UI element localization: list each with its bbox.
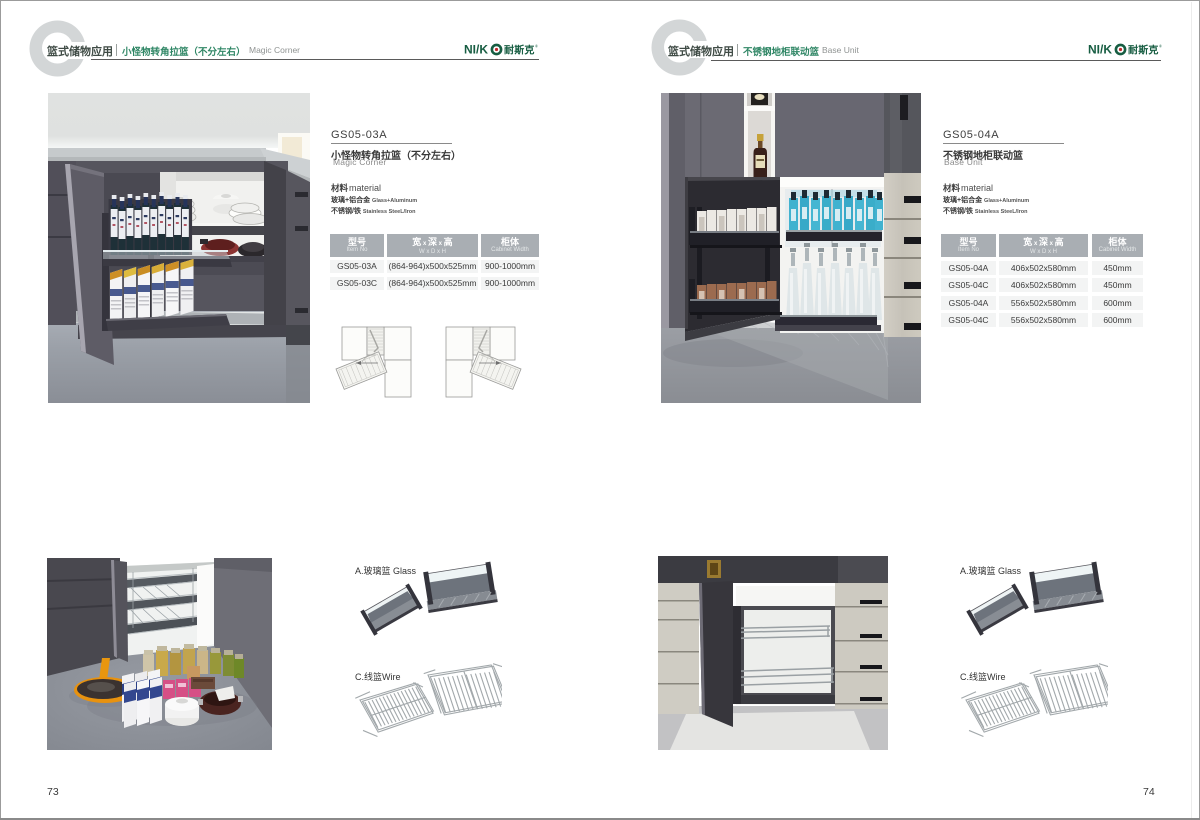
svg-text:NI/K: NI/K (1088, 43, 1112, 57)
svg-text:®: ® (1159, 44, 1162, 49)
svg-text:®: ® (535, 44, 538, 49)
svg-text:NI/K: NI/K (464, 43, 488, 57)
svg-text:耐斯克: 耐斯克 (504, 44, 535, 57)
svg-text:耐斯克: 耐斯克 (1128, 44, 1159, 57)
